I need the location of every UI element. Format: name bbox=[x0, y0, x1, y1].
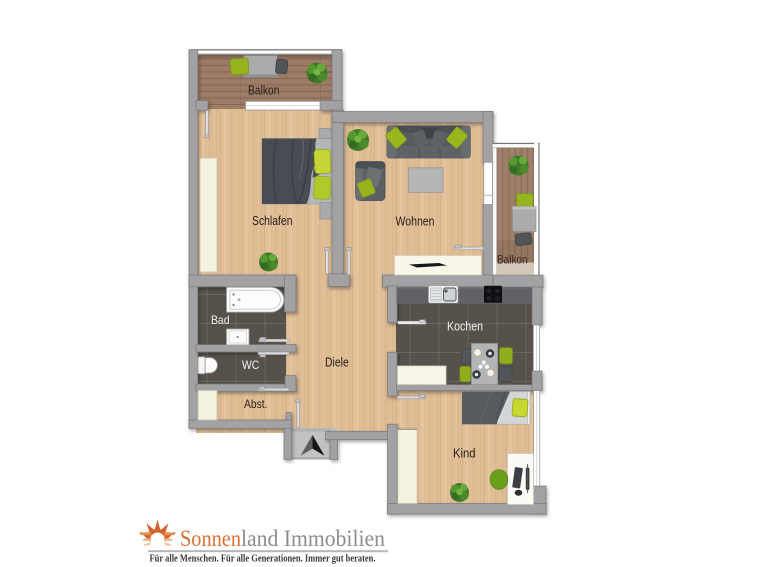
svg-text:Wohnen: Wohnen bbox=[396, 214, 435, 229]
svg-text:WC: WC bbox=[242, 358, 259, 372]
svg-text:Kochen: Kochen bbox=[447, 319, 483, 334]
svg-text:Für alle Menschen. Für alle Ge: Für alle Menschen. Für alle Generationen… bbox=[150, 554, 376, 565]
svg-text:Schlafen: Schlafen bbox=[252, 214, 293, 228]
svg-text:Abst.: Abst. bbox=[244, 397, 268, 411]
svg-text:Kind: Kind bbox=[453, 446, 476, 461]
svg-text:Diele: Diele bbox=[325, 355, 349, 370]
svg-text:Sonnen: Sonnen bbox=[180, 526, 241, 552]
svg-text:Balkon: Balkon bbox=[248, 83, 280, 98]
svg-text:Balkon: Balkon bbox=[497, 253, 528, 267]
svg-text:Bad: Bad bbox=[211, 313, 230, 327]
svg-text:land Immobilien: land Immobilien bbox=[241, 526, 385, 552]
